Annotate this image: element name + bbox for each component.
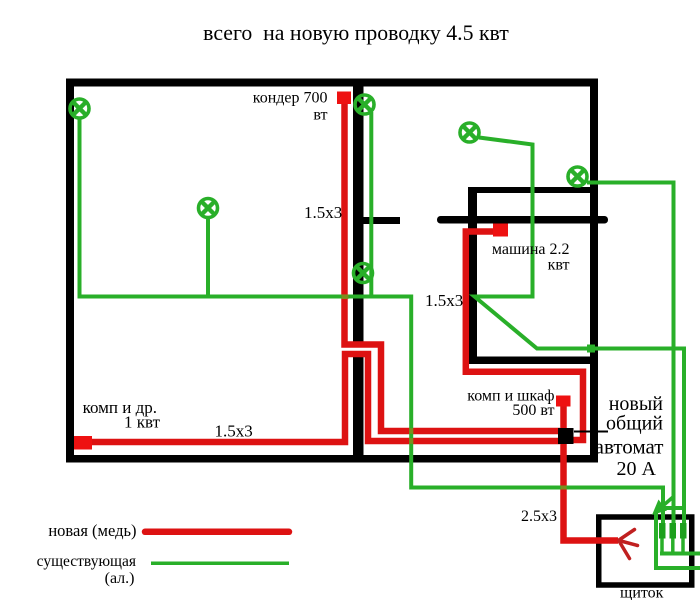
svg-text:машина 2.2: машина 2.2	[492, 241, 570, 258]
svg-text:общий: общий	[606, 413, 663, 435]
svg-text:20 А: 20 А	[617, 458, 657, 480]
svg-text:новая (медь): новая (медь)	[48, 521, 136, 540]
svg-text:1 квт: 1 квт	[124, 413, 161, 432]
svg-text:автомат: автомат	[595, 435, 664, 459]
svg-text:1.5x3: 1.5x3	[425, 291, 463, 310]
svg-text:всего на новую проводку 4.5 к: всего на новую проводку 4.5 квт	[203, 21, 509, 45]
svg-text:1.5x3: 1.5x3	[304, 203, 342, 222]
svg-text:2.5x3: 2.5x3	[521, 508, 557, 525]
svg-text:кондер 700: кондер 700	[253, 90, 328, 107]
svg-text:1.5x3: 1.5x3	[215, 422, 253, 441]
svg-text:существующая: существующая	[37, 553, 136, 570]
svg-text:(ал.): (ал.)	[105, 570, 135, 587]
svg-text:500 вт: 500 вт	[512, 402, 554, 419]
svg-text:вт: вт	[313, 107, 327, 124]
svg-text:квт: квт	[548, 257, 570, 274]
svg-text:щиток: щиток	[620, 585, 664, 600]
